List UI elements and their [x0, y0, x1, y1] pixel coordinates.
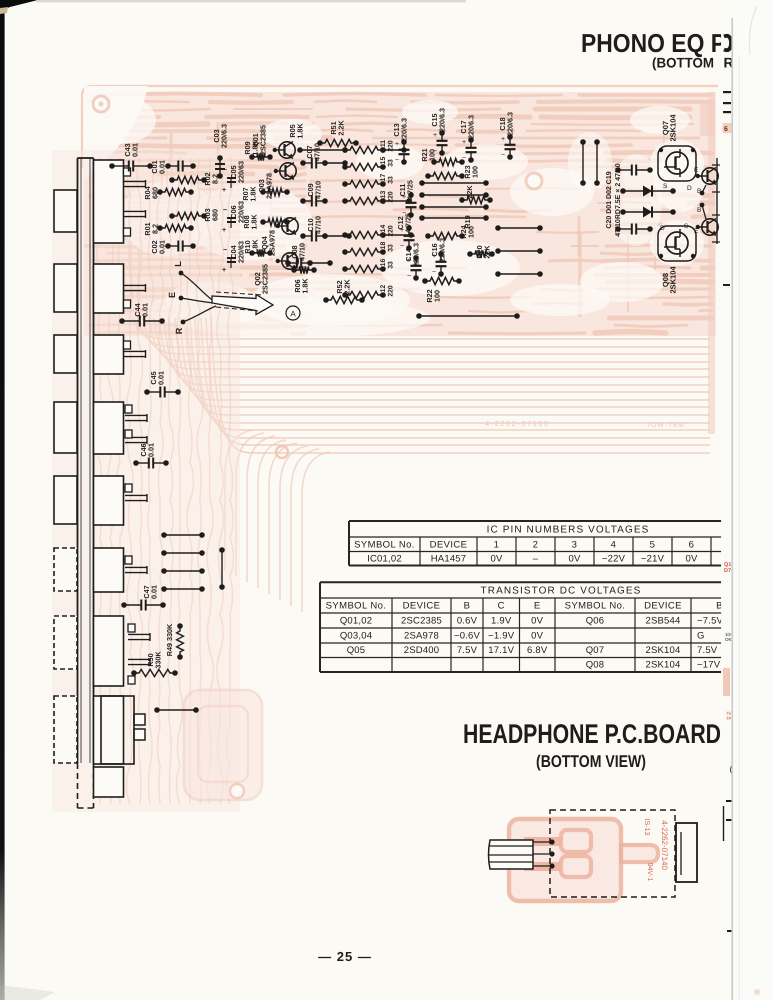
svg-text:2SC2385: 2SC2385 [260, 264, 269, 294]
svg-text:2SK104: 2SK104 [645, 660, 680, 671]
svg-text:2SC2385: 2SC2385 [401, 616, 442, 627]
svg-text:220/6.3: 220/6.3 [437, 238, 446, 262]
svg-text:PHONO EQ P: PHONO EQ P [581, 28, 726, 58]
svg-text:680: 680 [150, 187, 159, 199]
svg-text:D7: D7 [724, 568, 731, 574]
svg-text:SYMBOL No.: SYMBOL No. [326, 601, 387, 612]
svg-text:220/6.3: 220/6.3 [437, 108, 446, 132]
svg-text:33: 33 [387, 159, 394, 167]
svg-text:220/6.3: 220/6.3 [466, 115, 475, 139]
svg-text:1.8K: 1.8K [250, 140, 259, 156]
svg-text:7.5V: 7.5V [697, 645, 718, 656]
svg-text:0V: 0V [490, 554, 502, 565]
svg-text:R: R [174, 327, 184, 334]
svg-text:S: S [684, 223, 689, 230]
svg-text:0.01: 0.01 [146, 443, 155, 457]
svg-text:IC01,02: IC01,02 [367, 554, 402, 565]
svg-text:4-2262-07140: 4-2262-07140 [660, 820, 669, 870]
svg-text:3: 3 [572, 540, 578, 551]
svg-text:+: + [222, 187, 226, 194]
svg-text:R16: R16 [380, 259, 387, 272]
svg-text:100: 100 [470, 166, 479, 178]
svg-text:A: A [290, 310, 296, 319]
svg-text:2.2K: 2.2K [336, 120, 345, 136]
svg-text:+: + [222, 227, 226, 234]
svg-text:−1.9V: −1.9V [488, 631, 515, 642]
svg-text:HEADPHONE P.C.BOARD: HEADPHONE P.C.BOARD [463, 719, 721, 749]
svg-text:2SA978: 2SA978 [404, 631, 439, 642]
svg-text:SYMBOL No.: SYMBOL No. [354, 540, 415, 551]
svg-text:2SC2385: 2SC2385 [258, 125, 267, 155]
svg-text:2: 2 [533, 540, 539, 551]
svg-text:−0.6V: −0.6V [454, 631, 481, 642]
svg-text:(BOTTOM: (BOTTOM [652, 55, 714, 71]
svg-text:47/10RD7.5E × 2 47/10: 47/10RD7.5E × 2 47/10 [614, 163, 622, 236]
svg-text:0.6V: 0.6V [457, 616, 478, 627]
svg-text:SYMBOL No.: SYMBOL No. [565, 601, 626, 612]
svg-text:R17: R17 [380, 174, 387, 187]
svg-text:IS-13: IS-13 [643, 819, 650, 836]
svg-text:33: 33 [387, 261, 394, 269]
svg-text:6: 6 [689, 540, 695, 551]
svg-text:0.01: 0.01 [140, 303, 149, 317]
svg-text:Q06: Q06 [586, 616, 605, 627]
svg-text:100: 100 [432, 290, 441, 302]
svg-text:+: + [222, 267, 226, 274]
svg-text:S: S [663, 183, 668, 190]
svg-text:−: − [432, 269, 436, 276]
svg-text:17.1V: 17.1V [488, 645, 514, 656]
svg-text:0V: 0V [685, 554, 697, 565]
svg-text:Q05: Q05 [347, 645, 366, 656]
svg-text:2SK104: 2SK104 [668, 114, 677, 142]
svg-text:+: + [407, 257, 411, 264]
svg-text:−22V: −22V [602, 554, 626, 565]
svg-text:E: E [167, 292, 177, 298]
svg-text:R18: R18 [380, 242, 387, 255]
svg-text:−7.5V: −7.5V [697, 616, 724, 627]
svg-text:TRANSISTOR DC VOLTAGES: TRANSISTOR DC VOLTAGES [481, 586, 642, 597]
svg-text:+: + [462, 139, 466, 146]
svg-text:C20 D01 D02 C19: C20 D01 D02 C19 [606, 171, 613, 228]
svg-text:47/10: 47/10 [313, 216, 322, 234]
svg-text:−: − [223, 247, 227, 254]
svg-text:1.8K: 1.8K [249, 214, 258, 230]
svg-text:100: 100 [466, 226, 475, 238]
svg-text:0.01: 0.01 [156, 371, 165, 385]
svg-text:–: – [533, 554, 539, 565]
svg-text:HA1457: HA1457 [431, 554, 467, 565]
svg-text:+: + [395, 141, 399, 148]
svg-text:33: 33 [387, 176, 394, 184]
svg-text:0V: 0V [531, 616, 543, 627]
svg-text:E: E [694, 167, 699, 174]
svg-text:E: E [534, 601, 541, 612]
svg-text:7P: 7P [726, 716, 732, 721]
svg-text:DEVICE: DEVICE [430, 540, 468, 551]
svg-text:1: 1 [494, 540, 500, 551]
svg-text:7.5V: 7.5V [457, 645, 478, 656]
svg-text:−: − [407, 273, 411, 280]
svg-text:0.01: 0.01 [130, 143, 139, 157]
svg-text:D: D [687, 185, 692, 192]
svg-text:DEVICE: DEVICE [644, 601, 682, 612]
svg-text:0V: 0V [568, 554, 580, 565]
svg-text:680: 680 [210, 209, 219, 221]
svg-text:C: C [498, 601, 505, 612]
svg-text:E: E [694, 228, 699, 235]
svg-text:+: + [432, 253, 436, 260]
svg-text:220: 220 [387, 285, 394, 297]
svg-text:+: + [400, 227, 404, 234]
svg-text:94V-1: 94V-1 [646, 863, 653, 881]
svg-text:220/6.3: 220/6.3 [399, 118, 408, 142]
svg-text:220/63: 220/63 [236, 161, 245, 183]
svg-text:100: 100 [427, 149, 436, 161]
svg-text:B: B [464, 601, 471, 612]
svg-text:+: + [402, 194, 406, 201]
svg-text:Q01,02: Q01,02 [340, 616, 372, 627]
svg-text:+: + [433, 132, 437, 139]
svg-text:D: D [660, 225, 665, 232]
svg-text:2SB544: 2SB544 [645, 616, 680, 627]
svg-text:1.8K: 1.8K [295, 123, 304, 139]
svg-text:0.01: 0.01 [149, 585, 158, 599]
svg-text:1.8K: 1.8K [248, 186, 257, 202]
svg-text:1.8K: 1.8K [300, 278, 309, 294]
svg-text:+: + [501, 136, 505, 143]
svg-text:Q03,04: Q03,04 [340, 631, 372, 642]
svg-text:2.2K: 2.2K [342, 279, 351, 295]
svg-text:0.01: 0.01 [157, 160, 166, 174]
svg-text:DEVICE: DEVICE [403, 601, 441, 612]
svg-text:G: G [697, 631, 705, 642]
svg-text:−17V: −17V [697, 660, 721, 671]
svg-text:33: 33 [387, 244, 394, 252]
svg-text:2SK104: 2SK104 [668, 266, 677, 294]
svg-text:4: 4 [611, 540, 617, 551]
svg-text:L: L [173, 261, 183, 267]
svg-text:6.8V: 6.8V [527, 645, 548, 656]
svg-text:B: B [697, 207, 701, 214]
svg-text:220/6.3: 220/6.3 [219, 124, 228, 148]
svg-text:Q08: Q08 [586, 660, 605, 671]
svg-text:5: 5 [650, 540, 656, 551]
svg-text:−: − [223, 207, 227, 214]
svg-text:R15: R15 [380, 157, 387, 170]
svg-text:1.9V: 1.9V [491, 616, 512, 627]
svg-text:0V: 0V [531, 631, 543, 642]
svg-text:−: − [223, 167, 227, 174]
svg-text:R49 330K: R49 330K [165, 623, 174, 656]
svg-text:330K: 330K [153, 651, 162, 669]
svg-text:47/10: 47/10 [313, 181, 322, 199]
svg-text:8.2: 8.2 [150, 224, 159, 234]
svg-text:(BOTTOM VIEW): (BOTTOM VIEW) [536, 752, 646, 771]
svg-text:−: − [395, 157, 399, 164]
svg-text:2SK104: 2SK104 [645, 645, 680, 656]
svg-text:OK: OK [725, 637, 732, 642]
svg-text:R12: R12 [380, 285, 387, 298]
svg-text:2SD400: 2SD400 [404, 645, 440, 656]
svg-text:Q07: Q07 [586, 645, 605, 656]
svg-text:−: − [501, 152, 505, 159]
svg-text:220/6.3: 220/6.3 [505, 112, 514, 136]
svg-text:0.01: 0.01 [157, 240, 166, 254]
svg-text:— 25 —: — 25 — [318, 949, 372, 964]
svg-text:6: 6 [724, 126, 728, 133]
svg-text:IC PIN NUMBERS VOLTAGES: IC PIN NUMBERS VOLTAGES [487, 525, 650, 536]
svg-text:−21V: −21V [641, 554, 665, 565]
